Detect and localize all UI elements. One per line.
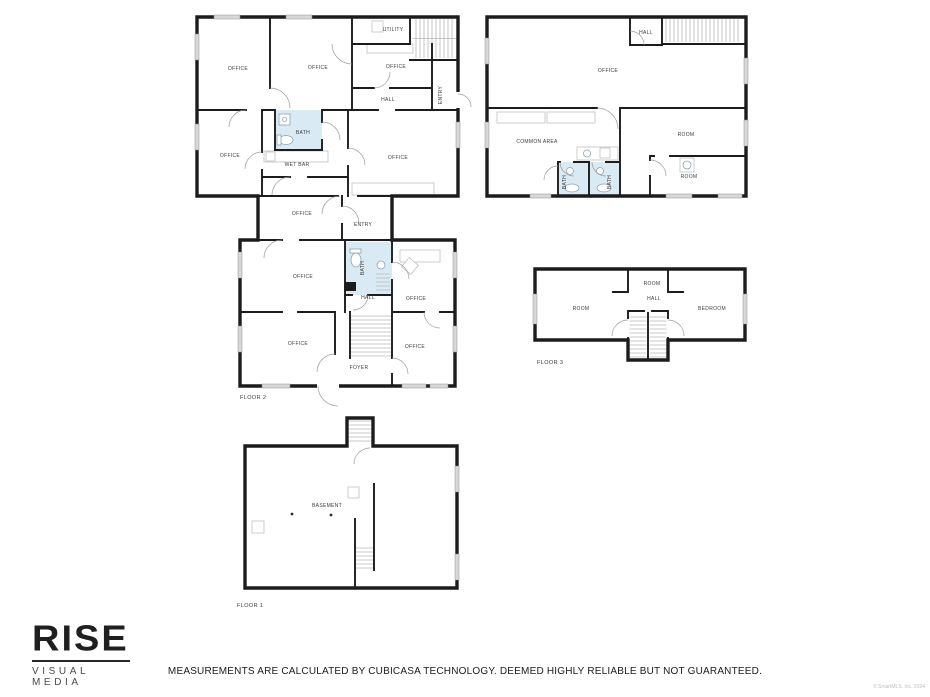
room-label-office: OFFICE — [308, 65, 328, 71]
copyright-text: © SmartMLS, Inc. 2024 — [873, 684, 925, 690]
floor-1-outer-walls — [245, 418, 457, 588]
room-label-hall: HALL — [381, 97, 395, 103]
room-label-office: OFFICE — [220, 153, 240, 159]
room-label-office: OFFICE — [405, 344, 425, 350]
room-label-foyer: FOYER — [350, 365, 369, 371]
rise-logo: RISE VISUAL MEDIA — [32, 620, 142, 688]
floor-2-label: FLOOR 2 — [240, 395, 266, 401]
room-label-office: OFFICE — [598, 68, 618, 74]
room-label-basement: BASEMENT — [312, 503, 342, 509]
floor-2-room-labels: OFFICE OFFICE UTILITY OFFICE HALL ENTRY … — [220, 27, 444, 371]
upper-level-plan: HALL OFFICE COMMON AREA BATH BATH ROOM R… — [485, 17, 748, 198]
floor-1-interior-walls — [355, 484, 374, 588]
floor-1-label: FLOOR 1 — [237, 603, 263, 609]
room-label-utility: UTILITY — [383, 27, 404, 33]
floor-plans-svg: OFFICE OFFICE UTILITY OFFICE HALL ENTRY … — [0, 0, 930, 697]
room-label-office: OFFICE — [228, 66, 248, 72]
floor-3-label: FLOOR 3 — [537, 360, 563, 366]
floor-3-outer-walls — [535, 269, 745, 360]
upper-level-stairs-icon — [666, 19, 738, 42]
floor-3-room-labels: ROOM ROOM HALL BEDROOM — [573, 281, 726, 312]
room-label-office: OFFICE — [406, 296, 426, 302]
room-label-bath: BATH — [296, 130, 310, 136]
room-label-hall: HALL — [639, 30, 653, 36]
room-label-bedroom: BEDROOM — [698, 306, 726, 312]
room-label-bath: BATH — [562, 175, 568, 189]
logo-brand-text: RISE — [32, 621, 142, 657]
room-label-hall: HALL — [647, 296, 661, 302]
room-label-office: OFFICE — [386, 64, 406, 70]
room-label-common-area: COMMON AREA — [516, 139, 558, 145]
floor-1-door-arcs — [354, 448, 370, 464]
floor-2-plan: OFFICE OFFICE UTILITY OFFICE HALL ENTRY … — [195, 15, 471, 406]
room-label-room: ROOM — [644, 281, 661, 287]
room-label-hall: HALL — [361, 295, 375, 301]
room-label-entry: ENTRY — [438, 85, 444, 104]
room-label-entry: ENTRY — [354, 222, 373, 228]
room-label-office: OFFICE — [388, 155, 408, 161]
room-label-room: ROOM — [681, 174, 698, 180]
room-label-bath: BATH — [360, 261, 366, 275]
room-label-office: OFFICE — [288, 341, 308, 347]
floor-3-plan: ROOM ROOM HALL BEDROOM FLOOR 3 — [533, 269, 747, 366]
room-label-office: OFFICE — [293, 274, 313, 280]
disclaimer-text: MEASUREMENTS ARE CALCULATED BY CUBICASA … — [0, 666, 930, 677]
floor-1-fixtures — [252, 487, 359, 533]
room-label-bath: BATH — [607, 175, 613, 189]
room-label-wet-bar: WET BAR — [285, 162, 310, 168]
logo-underline — [32, 660, 130, 662]
floorplan-page: OFFICE OFFICE UTILITY OFFICE HALL ENTRY … — [0, 0, 930, 697]
room-label-room: ROOM — [573, 306, 590, 312]
room-label-office: OFFICE — [292, 211, 312, 217]
floor-1-room-labels: BASEMENT — [312, 503, 342, 509]
floor-1-plan: BASEMENT FLOOR 1 — [237, 418, 459, 609]
room-label-room: ROOM — [678, 132, 695, 138]
